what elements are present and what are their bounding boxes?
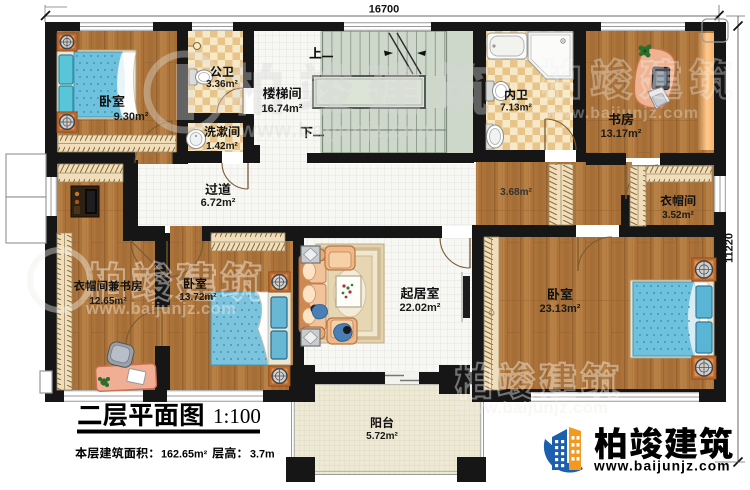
svg-text:www.baijunjz.com: www.baijunjz.com xyxy=(593,459,731,474)
svg-text:3.7m: 3.7m xyxy=(250,449,275,461)
svg-text:www.baijunjz.com: www.baijunjz.com xyxy=(239,119,437,142)
svg-text:12.65m²: 12.65m² xyxy=(89,296,127,307)
svg-text:9.30m²: 9.30m² xyxy=(114,111,149,123)
svg-text:23.13m²: 23.13m² xyxy=(540,303,581,315)
svg-text:7.13m²: 7.13m² xyxy=(500,103,532,114)
svg-text:3.68m²: 3.68m² xyxy=(500,187,532,198)
svg-text:www.baijunjz.com: www.baijunjz.com xyxy=(544,105,699,122)
svg-text:5.72m²: 5.72m² xyxy=(366,431,398,442)
svg-text:1:100: 1:100 xyxy=(213,404,261,428)
svg-text:22.02m²: 22.02m² xyxy=(400,302,441,314)
svg-text:3.36m²: 3.36m² xyxy=(206,79,238,90)
svg-text:16700: 16700 xyxy=(369,4,400,16)
svg-text:13.72m²: 13.72m² xyxy=(179,292,217,303)
svg-text:13.17m²: 13.17m² xyxy=(601,128,642,140)
svg-text:162.65m²: 162.65m² xyxy=(161,449,208,461)
svg-text:16.74m²: 16.74m² xyxy=(262,103,303,115)
svg-text:www.baijunjz.com: www.baijunjz.com xyxy=(457,399,608,417)
svg-text:11220: 11220 xyxy=(724,233,736,263)
svg-text:1.42m²: 1.42m² xyxy=(206,141,238,152)
svg-text:6.72m²: 6.72m² xyxy=(201,197,236,209)
svg-text:3.52m²: 3.52m² xyxy=(662,210,694,221)
